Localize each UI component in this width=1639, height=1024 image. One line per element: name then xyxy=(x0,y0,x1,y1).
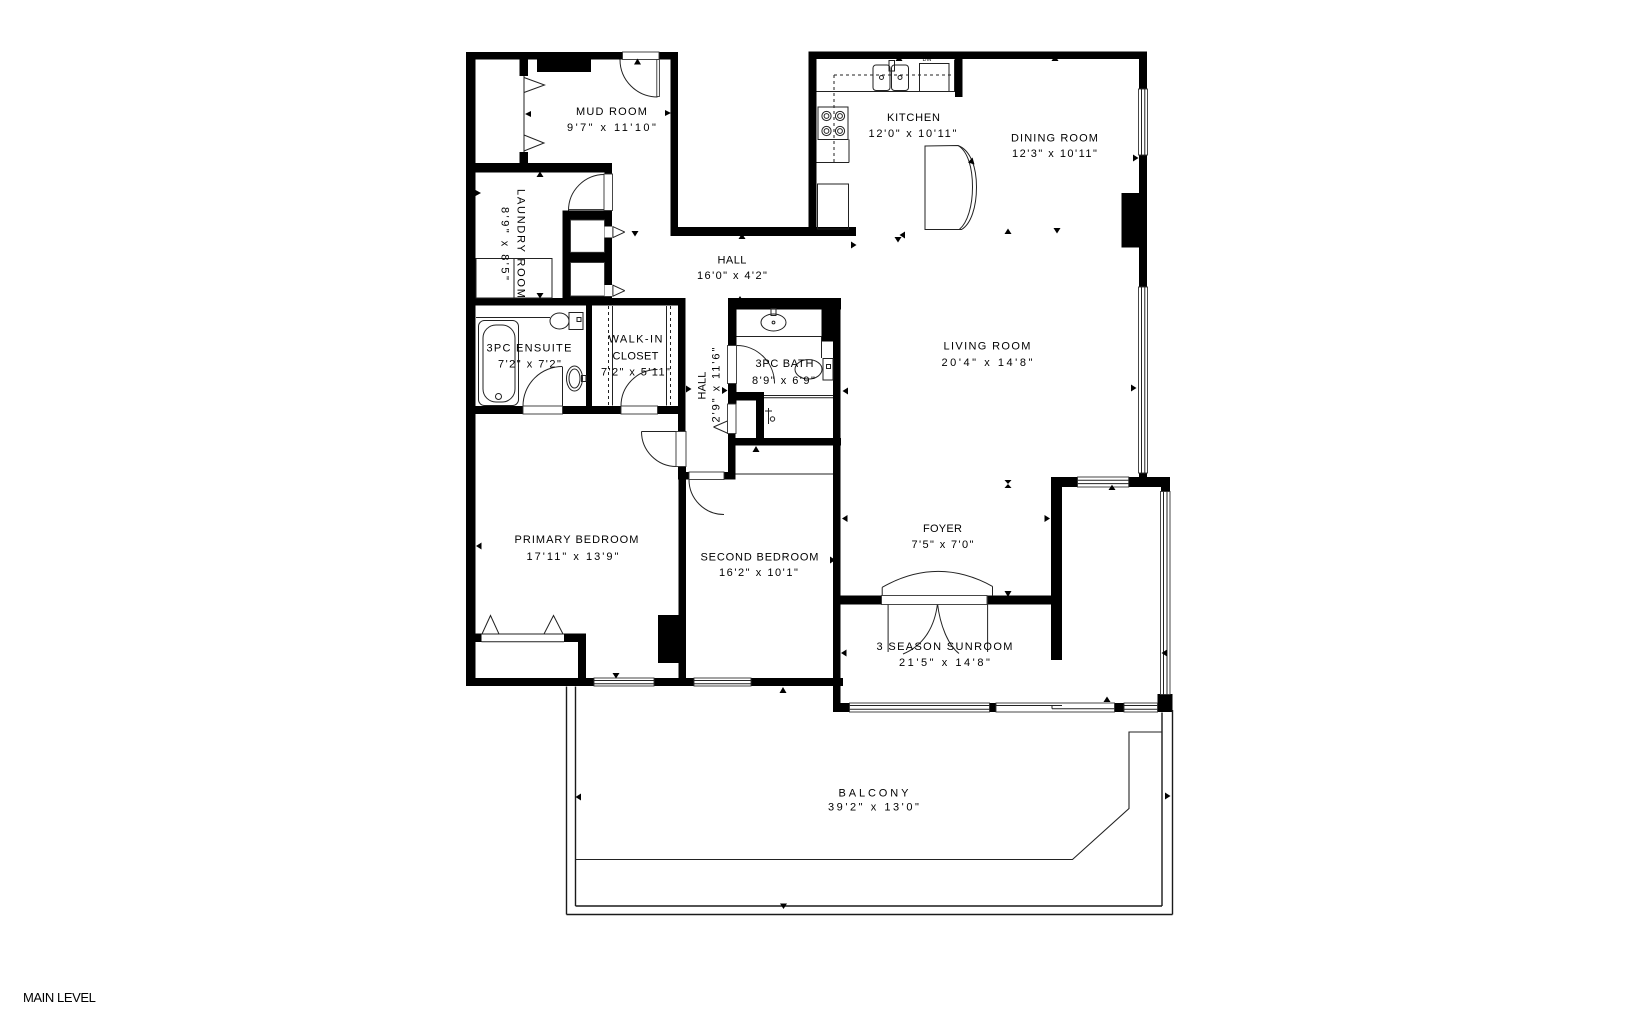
svg-text:2'9" x 11'6": 2'9" x 11'6" xyxy=(711,347,723,423)
svg-text:HALL: HALL xyxy=(718,255,748,267)
svg-text:MUD ROOM: MUD ROOM xyxy=(576,106,648,118)
svg-text:3PC ENSUITE: 3PC ENSUITE xyxy=(487,343,573,355)
svg-text:WALK-IN: WALK-IN xyxy=(609,334,664,346)
svg-text:7'2" x 7'2": 7'2" x 7'2" xyxy=(498,359,562,371)
svg-text:39'2" x 13'0": 39'2" x 13'0" xyxy=(828,802,920,814)
svg-text:KITCHEN: KITCHEN xyxy=(887,112,941,124)
svg-text:CLOSET: CLOSET xyxy=(613,351,660,363)
svg-text:3PC BATH: 3PC BATH xyxy=(756,358,815,370)
svg-text:8'9" x 8'5": 8'9" x 8'5" xyxy=(499,207,511,281)
svg-text:9'7" x 11'10": 9'7" x 11'10" xyxy=(567,122,657,134)
svg-text:MAIN LEVEL: MAIN LEVEL xyxy=(23,990,96,1005)
svg-text:DW: DW xyxy=(923,57,933,63)
svg-text:17'11" x 13'9": 17'11" x 13'9" xyxy=(527,551,620,563)
svg-text:20'4" x 14'8": 20'4" x 14'8" xyxy=(942,357,1034,369)
svg-text:7'2" x 5'11": 7'2" x 5'11" xyxy=(601,367,671,379)
svg-text:SECOND BEDROOM: SECOND BEDROOM xyxy=(701,552,820,564)
svg-text:12'0" x 10'11": 12'0" x 10'11" xyxy=(869,128,958,140)
svg-text:PRIMARY BEDROOM: PRIMARY BEDROOM xyxy=(515,534,640,546)
svg-text:BALCONY: BALCONY xyxy=(839,788,910,800)
svg-text:LIVING ROOM: LIVING ROOM xyxy=(944,341,1032,353)
svg-text:12'3" x 10'11": 12'3" x 10'11" xyxy=(1012,148,1098,160)
svg-text:FOYER: FOYER xyxy=(923,523,963,535)
svg-text:DINING ROOM: DINING ROOM xyxy=(1011,133,1099,145)
svg-text:16'2" x 10'1": 16'2" x 10'1" xyxy=(719,567,799,579)
svg-text:HALL: HALL xyxy=(697,371,709,400)
svg-text:21'5" x 14'8": 21'5" x 14'8" xyxy=(899,657,991,669)
svg-text:16'0" x 4'2": 16'0" x 4'2" xyxy=(697,270,768,282)
svg-text:LAUNDRY ROOM: LAUNDRY ROOM xyxy=(515,189,527,299)
svg-text:8'9" x 6'9": 8'9" x 6'9" xyxy=(752,375,816,387)
svg-text:7'5" x 7'0": 7'5" x 7'0" xyxy=(912,539,975,551)
svg-text:3 SEASON SUNROOM: 3 SEASON SUNROOM xyxy=(877,641,1014,653)
